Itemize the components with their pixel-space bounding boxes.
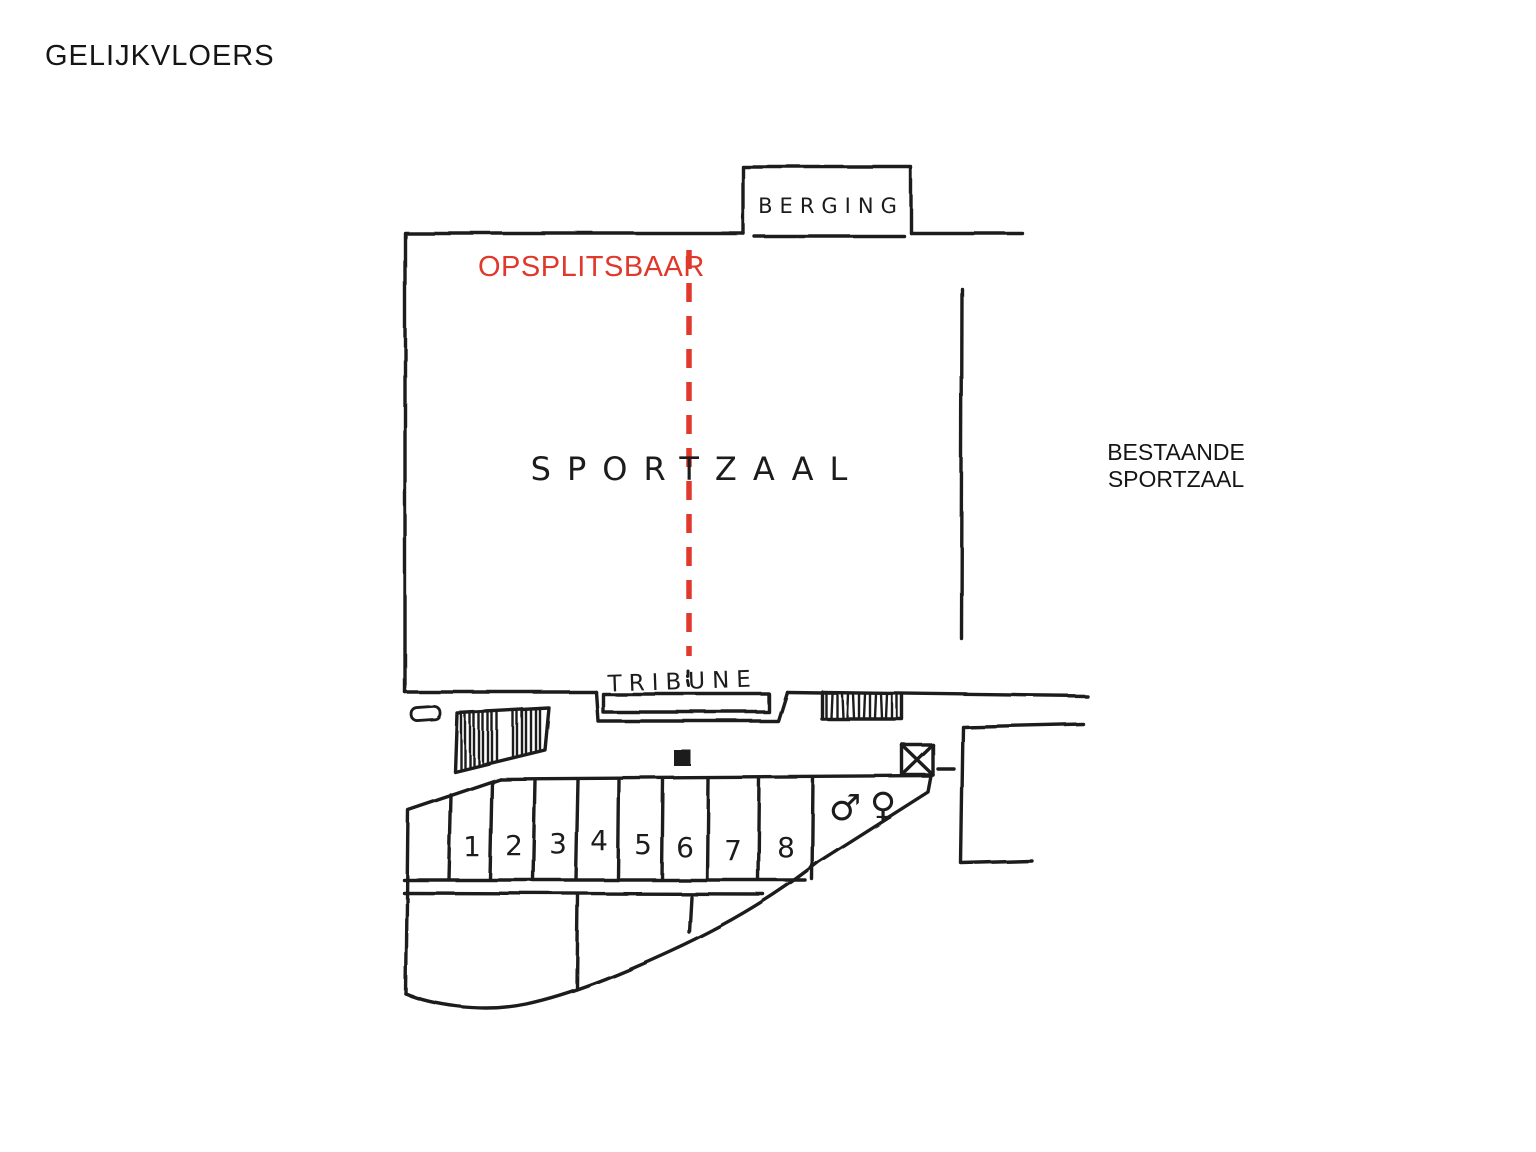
lower-region-dividers [577, 895, 691, 988]
tribune-label: TRIBUNE [606, 666, 758, 697]
existing-hall-label-line1: BESTAANDE [1103, 439, 1249, 466]
cell-number-8: 8 [777, 831, 795, 864]
sketch-labels: SPORTZAAL BERGING TRIBUNE 1 2 3 4 5 6 7 … [463, 194, 904, 867]
door-symbol [411, 706, 441, 721]
page: SPORTZAAL BERGING TRIBUNE 1 2 3 4 5 6 7 … [0, 0, 1536, 1152]
column-marker [674, 750, 691, 766]
shaft-symbol [902, 745, 933, 775]
storage-room-label: BERGING [758, 194, 904, 218]
divisible-label: OPSPLITSBAAR [478, 251, 705, 284]
existing-hall-label-line2: SPORTZAAL [1103, 466, 1249, 493]
shaft-cross [902, 745, 933, 775]
ink-linework [404, 167, 1087, 1008]
cell-numbers: 1 2 3 4 5 6 7 8 [463, 824, 795, 867]
female-icon: ♀ [870, 786, 896, 827]
cell-number-6: 6 [676, 831, 694, 864]
male-icon: ♂ [829, 788, 861, 829]
hall-label: SPORTZAAL [531, 450, 864, 488]
cell-divider-lines [449, 778, 813, 879]
cells-top-line [500, 776, 931, 779]
cell-number-1: 1 [463, 830, 481, 863]
existing-hall-label: BESTAANDE SPORTZAAL [1103, 439, 1249, 493]
cell-number-4: 4 [590, 824, 608, 857]
floor-plan-svg: SPORTZAAL BERGING TRIBUNE 1 2 3 4 5 6 7 … [0, 0, 1536, 1152]
stairs-hatch-right-outline [822, 692, 902, 719]
hall-right-wall [961, 289, 962, 638]
cell-number-7: 7 [724, 834, 742, 867]
existing-hall-outline [961, 724, 1083, 863]
page-title: GELIJKVLOERS [45, 40, 275, 73]
cells-left-wall [406, 779, 500, 994]
cell-number-3: 3 [549, 827, 567, 860]
lower-band-line [404, 893, 763, 894]
cell-number-5: 5 [634, 828, 652, 861]
stairs-hatch-right-lines [826, 694, 897, 718]
cell-number-2: 2 [505, 829, 523, 862]
